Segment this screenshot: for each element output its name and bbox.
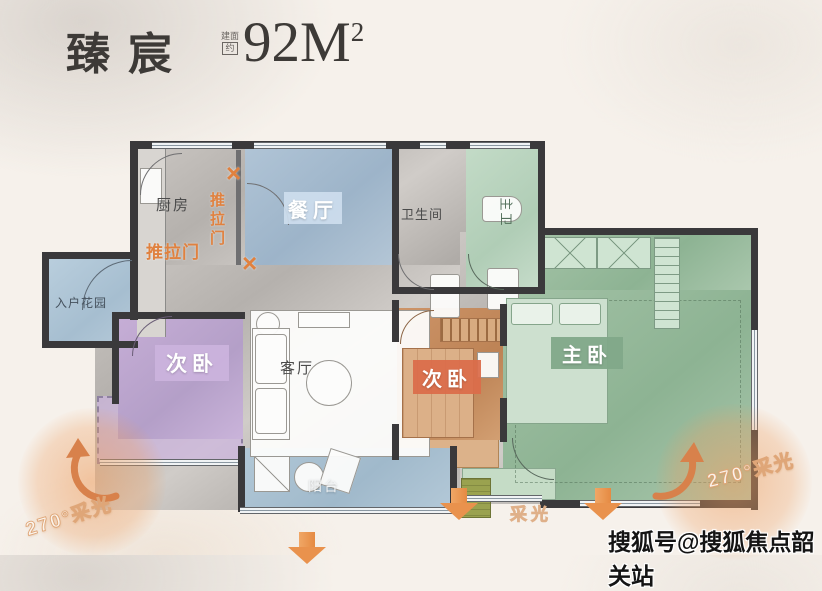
- daylight-label: 采光: [510, 500, 552, 525]
- wall: [392, 300, 399, 342]
- watermark: 搜狐号@搜狐焦点韶关站: [608, 523, 822, 591]
- master-cabinet: [654, 237, 680, 329]
- daylight-arrow-down: [288, 532, 326, 564]
- bathroom-sink: [430, 274, 460, 318]
- label-bathroom: 卫生间: [401, 204, 443, 223]
- label-balcony: 阳台: [308, 476, 340, 496]
- cross-mark: ×: [226, 158, 241, 189]
- wardrobe-hangers: [440, 318, 501, 342]
- wall: [392, 287, 545, 294]
- sliding-door-label-vertical: 推拉门: [206, 192, 227, 249]
- wall: [500, 398, 507, 442]
- label-dining: 餐厅: [284, 192, 342, 224]
- window: [470, 142, 530, 149]
- wall: [392, 149, 399, 294]
- master-wardrobe: [543, 237, 597, 269]
- wall: [42, 252, 49, 348]
- pillow: [559, 303, 601, 325]
- daylight-arrow-down: [584, 488, 622, 520]
- area-value: 92M2: [243, 10, 364, 75]
- master-wardrobe: [597, 237, 651, 269]
- wall: [112, 312, 245, 319]
- window: [152, 142, 232, 149]
- wall: [392, 424, 399, 460]
- label-bedroom-mid: 次卧: [413, 360, 481, 394]
- label-bedroom-left: 次卧: [155, 345, 229, 381]
- label-master-bedroom: 主卧: [551, 337, 623, 369]
- area-prefix-bottom: 约: [222, 42, 238, 55]
- wall: [112, 312, 119, 404]
- area-number: 92M: [243, 11, 351, 74]
- wall: [538, 141, 545, 294]
- window: [254, 142, 386, 149]
- tv-stand: [298, 312, 350, 328]
- balcony-rail: [240, 507, 458, 514]
- pillow: [511, 303, 553, 325]
- wall: [238, 446, 245, 512]
- area-prefix-top: 建面: [219, 31, 241, 41]
- label-kitchen: 厨房: [156, 194, 190, 215]
- window: [420, 142, 446, 149]
- wall: [500, 304, 507, 346]
- daylight-arrow-down: [440, 488, 478, 520]
- label-entry-garden: 入户花园: [55, 294, 107, 311]
- sofa-cushion: [255, 388, 287, 434]
- label-living: 客厅: [280, 357, 314, 378]
- wall: [42, 252, 138, 259]
- wall: [42, 341, 138, 348]
- area-superscript: 2: [351, 17, 365, 47]
- cross-mark: ×: [242, 248, 257, 279]
- label-master-bath: 主卫: [498, 197, 517, 227]
- plan-title: 臻宸: [66, 18, 190, 82]
- wall: [130, 141, 138, 262]
- balcony-planter: [254, 456, 290, 492]
- wall: [538, 228, 758, 235]
- sliding-door-label: 推拉门: [146, 238, 200, 263]
- area-prefix: 建面 约: [219, 31, 241, 55]
